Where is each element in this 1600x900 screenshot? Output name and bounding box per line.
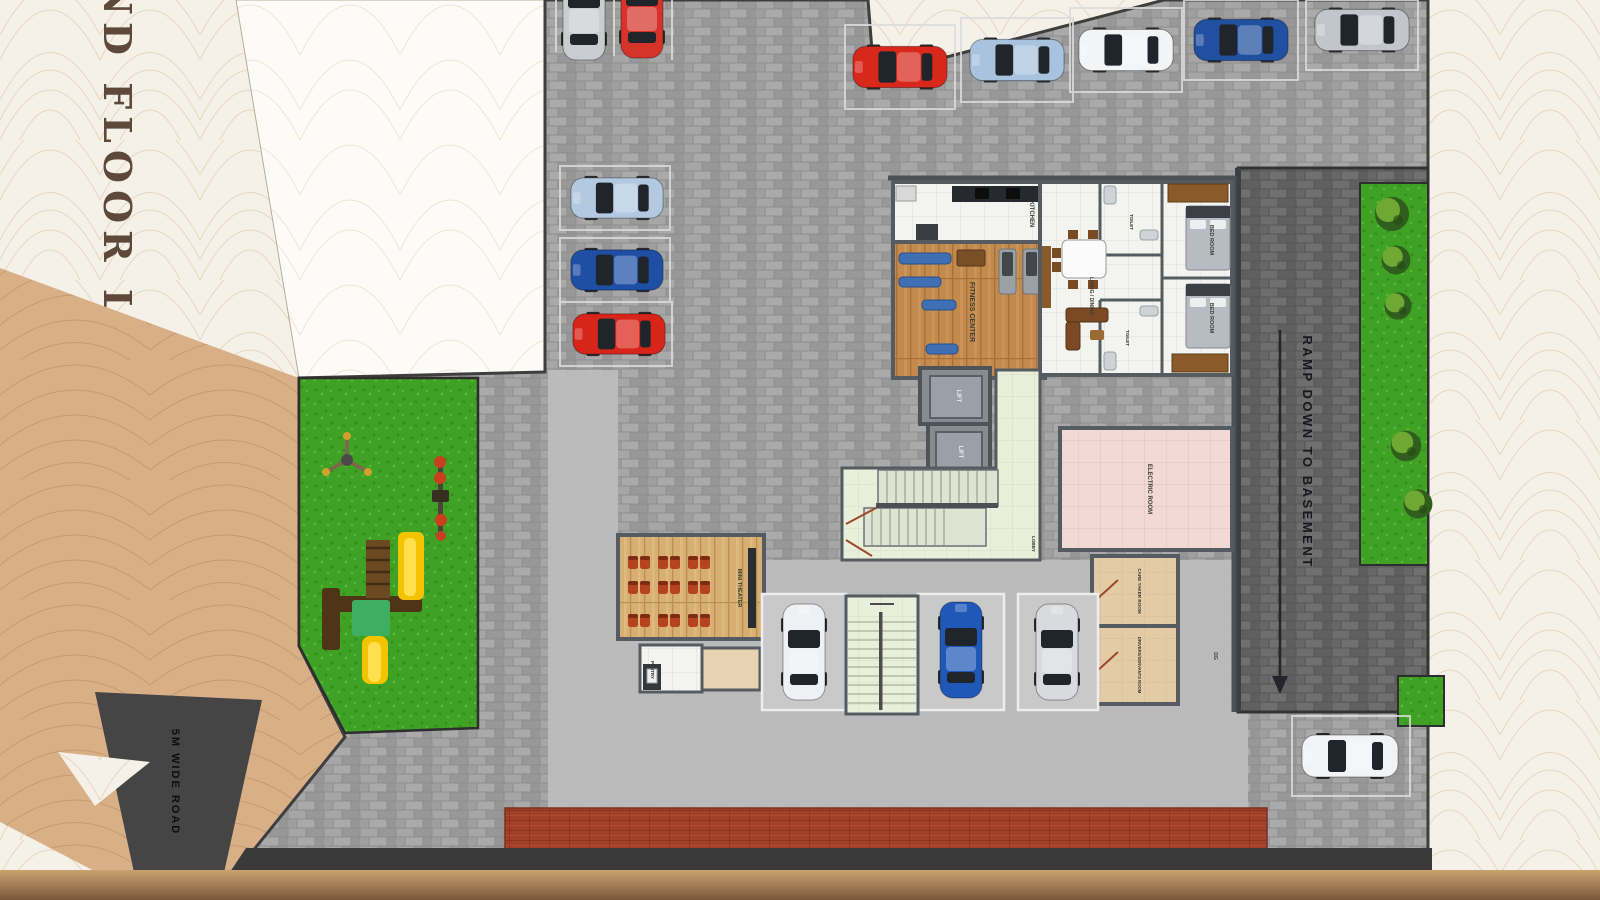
room-theater: MINI THEATER: [618, 535, 764, 639]
lift-shafts: LIFT LIFT: [920, 368, 990, 480]
room-fitness: FITNESS CENTER: [893, 242, 1045, 378]
bed: [1186, 206, 1230, 270]
stair-down: [846, 596, 918, 714]
tree-icon: [1404, 490, 1433, 519]
kitchen-label: KITCHEN: [1028, 201, 1034, 228]
car-left-darkblue: [571, 248, 663, 292]
site-edge-band: [230, 848, 1432, 872]
car-bay-white: [781, 604, 827, 700]
tree-icon: [1391, 431, 1422, 462]
car-toprow-darkblue: [1194, 17, 1288, 62]
tree-icon: [1384, 292, 1411, 319]
car-toprow-lightblue: [970, 37, 1064, 82]
car-toprow-red: [853, 44, 947, 89]
ramp-label: RAMP DOWN TO BASEMENT: [1300, 335, 1315, 568]
toilet1-label: TOILET: [1129, 214, 1134, 230]
room-caretaker: CARE TAKER ROOM: [1092, 556, 1178, 626]
car-corner-white: [1302, 733, 1398, 779]
room-pantry: PANTRY: [640, 645, 760, 692]
road-label: 5M WIDE ROAD: [169, 729, 181, 836]
fitness-label: FITNESS CENTER: [968, 282, 975, 342]
room-electric: ELECTRIC ROOM: [1060, 428, 1232, 550]
theater-label: MINI THEATER: [736, 569, 742, 608]
tree-icon: [1375, 197, 1409, 231]
room-kitchen: KITCHEN: [893, 182, 1043, 242]
car-left-lightblue: [571, 176, 663, 220]
car-toprow-white: [1079, 27, 1173, 72]
tv-unit: [1042, 246, 1051, 308]
apartment-unit: LIVING / DINING BED ROOM BED ROOM TOILET…: [1040, 182, 1232, 375]
tree-icon: [1382, 246, 1411, 275]
dg-label: DG: [1212, 652, 1218, 660]
lobby-label: LOBBY: [1031, 536, 1036, 552]
car-top-cut-red: [619, 0, 665, 58]
floor-plan: GROUND FLOOR LAYOUT 5M WIDE ROAD: [0, 0, 1600, 900]
car-top-cut-silver: [561, 0, 607, 60]
bed: [1186, 284, 1230, 348]
bedroom2-label: BED ROOM: [1208, 303, 1214, 334]
drivers-label: DRIVERS/SERVANTS ROOM: [1137, 637, 1142, 694]
electric-label: ELECTRIC ROOM: [1146, 464, 1152, 514]
toilet2-label: TOILET: [1125, 330, 1130, 346]
lift2-label: LIFT: [957, 446, 963, 459]
car-bay-blue: [938, 602, 984, 698]
caretaker-label: CARE TAKER ROOM: [1137, 568, 1142, 614]
bedroom1-label: BED ROOM: [1208, 225, 1214, 256]
playground: [299, 378, 478, 733]
car-bay-silver: [1034, 604, 1080, 700]
room-drivers: DRIVERS/SERVANTS ROOM: [1092, 626, 1178, 704]
car-toprow-grey: [1315, 7, 1409, 52]
living-label: LIVING / DINING: [1088, 277, 1094, 315]
car-left-red: [573, 312, 665, 356]
bottom-ground-strip: [0, 870, 1600, 900]
lift1-label: LIFT: [955, 390, 961, 403]
pantry-label: PANTRY: [650, 661, 655, 679]
floor-plan-page: GROUND FLOOR LAYOUT 5M WIDE ROAD: [0, 0, 1600, 900]
